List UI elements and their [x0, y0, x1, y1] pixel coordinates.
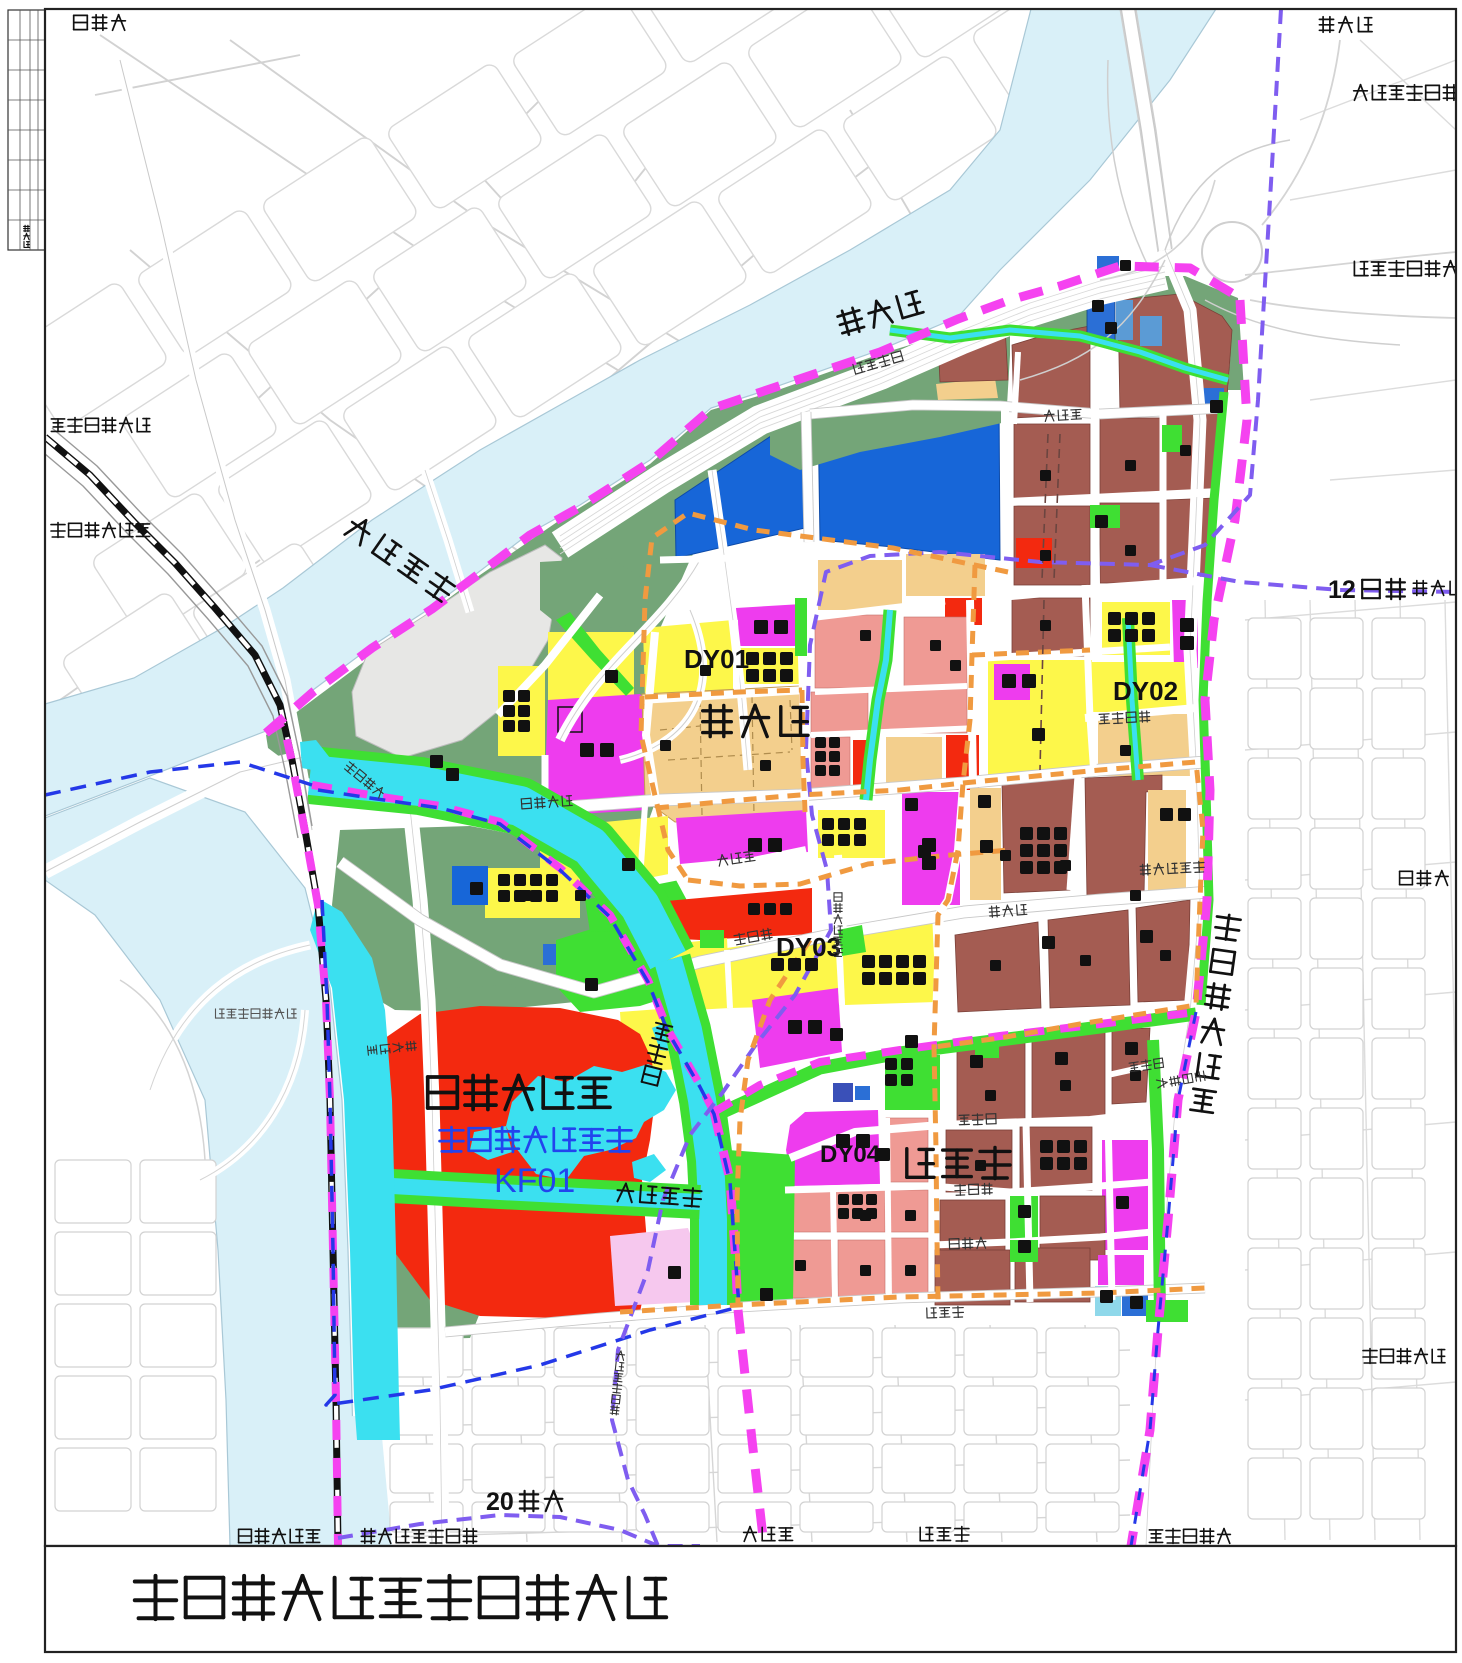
svg-text:20: 20 [486, 1488, 514, 1516]
svg-text:KF01: KF01 [494, 1162, 575, 1200]
svg-text:DY04: DY04 [820, 1141, 881, 1168]
svg-text:DY02: DY02 [1113, 676, 1178, 706]
svg-text:12: 12 [1328, 576, 1356, 604]
svg-text:DY01: DY01 [684, 644, 749, 674]
svg-text:DY03: DY03 [776, 932, 841, 962]
